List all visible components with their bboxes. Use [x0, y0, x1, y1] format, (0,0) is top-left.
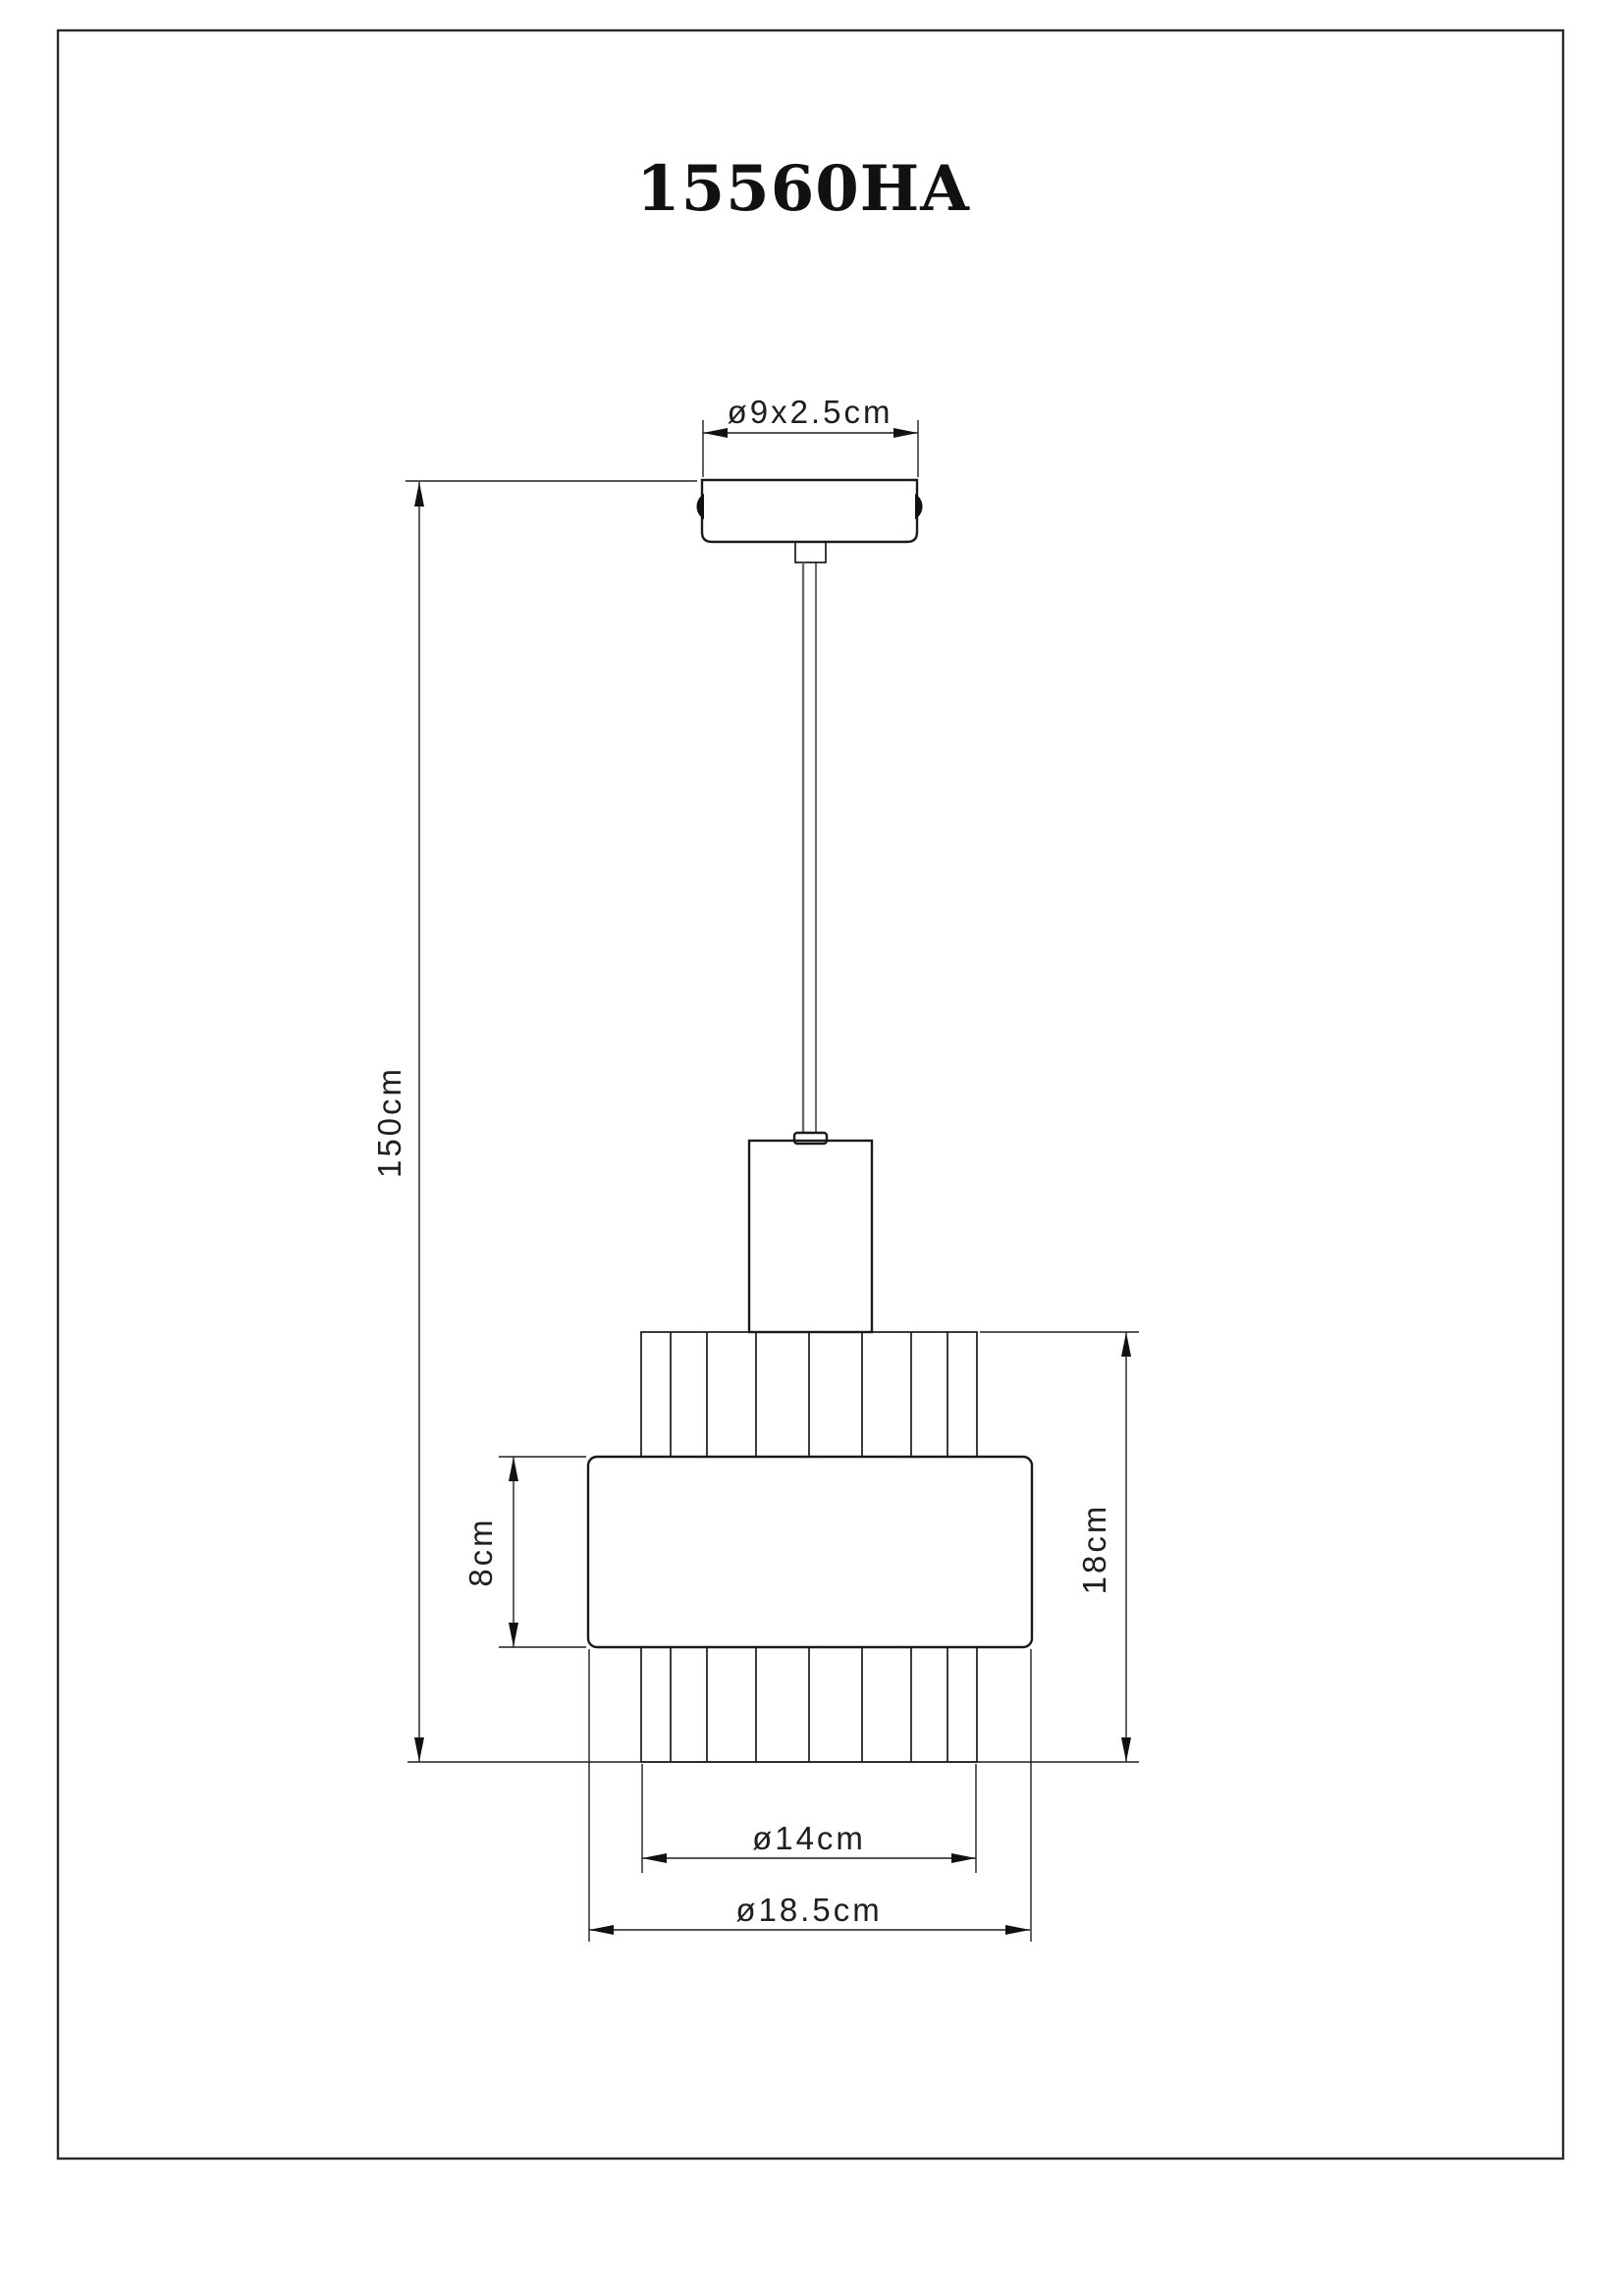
dimension-inner-diameter: ø14cm: [642, 1764, 976, 1873]
arrow-up-icon: [1121, 1332, 1131, 1357]
shade-lower-ribbed-section: [641, 1647, 977, 1762]
arrow-right-icon: [1005, 1925, 1030, 1935]
band-height-label: 8cm: [462, 1517, 499, 1586]
drawing-page: 15560HA ø9x2.5cm: [0, 0, 1623, 2296]
cord-grip: [795, 542, 826, 562]
socket-body: [749, 1141, 872, 1332]
arrow-down-icon: [414, 1737, 424, 1762]
shade-height-label: 18cm: [1076, 1504, 1112, 1595]
cord-flange: [794, 1133, 827, 1144]
arrow-right-icon: [893, 428, 918, 438]
arrow-left-icon: [642, 1853, 667, 1863]
outer-diameter-label: ø18.5cm: [735, 1892, 882, 1928]
arrow-down-icon: [509, 1623, 518, 1647]
dimension-canopy: ø9x2.5cm: [703, 394, 918, 477]
arrow-left-icon: [589, 1925, 614, 1935]
shade-middle-band: [588, 1457, 1032, 1647]
dimension-drop-height: 150cm: [371, 481, 697, 1762]
arrow-down-icon: [1121, 1737, 1131, 1762]
arrow-right-icon: [951, 1853, 976, 1863]
canopy-outline: [702, 480, 917, 542]
canopy-screw-right: [915, 494, 923, 519]
arrow-up-icon: [509, 1457, 518, 1481]
ceiling-canopy: [697, 480, 923, 562]
canopy-dimension-label: ø9x2.5cm: [728, 394, 893, 430]
suspension-cord: [803, 562, 816, 1134]
dimension-band-height: 8cm: [462, 1457, 586, 1647]
technical-drawing: 15560HA ø9x2.5cm: [0, 0, 1623, 2296]
dimension-outer-diameter: ø18.5cm: [589, 1649, 1031, 1942]
inner-diameter-label: ø14cm: [752, 1820, 866, 1856]
product-code-title: 15560HA: [636, 152, 970, 226]
drop-height-label: 150cm: [371, 1066, 407, 1178]
canopy-screw-left: [697, 494, 705, 519]
arrow-up-icon: [414, 482, 424, 507]
shade-upper-ribbed-section: [641, 1332, 977, 1457]
arrow-left-icon: [703, 428, 728, 438]
dimension-shade-height: 18cm: [407, 1332, 1139, 1762]
socket-holder: [749, 1133, 872, 1332]
